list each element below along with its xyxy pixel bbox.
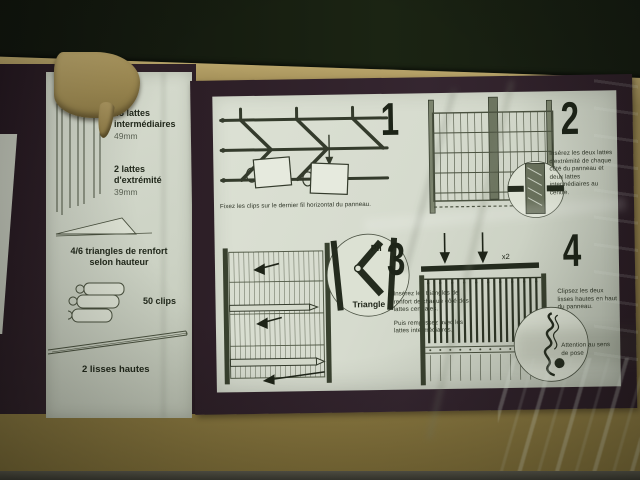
parts-item-rails: 2 lisses hautes <box>82 364 182 376</box>
step3-number: 3 <box>387 236 405 282</box>
triangle-label: Triangle <box>353 299 386 310</box>
multiplier-label: x2 <box>502 252 510 261</box>
step2-number: 2 <box>560 95 578 141</box>
floor-strip <box>0 471 640 480</box>
fold-label: Pli <box>371 243 382 253</box>
parts-list-panel: 43 lattes intermédiaires 49mm 2 lattes d… <box>46 72 192 418</box>
step1-number: 1 <box>380 96 398 142</box>
step2-panel-diagram <box>418 93 570 221</box>
parts-item-end-slats: 2 lattes d'extrémité 39mm <box>114 164 190 197</box>
parts-item-intermediate-slats: 43 lattes intermédiaires 49mm <box>114 108 190 141</box>
instruction-sheet: 1 Fixez les clips sur le dernier fil hor… <box>212 90 621 392</box>
parts-item-clips: 50 clips <box>143 296 189 307</box>
box-photo: 43 lattes intermédiaires 49mm 2 lattes d… <box>0 0 640 480</box>
parts-item-triangles: 4/6 triangles de renfort selon hauteur <box>50 246 188 269</box>
step1-clips-on-wire-diagram <box>218 104 389 199</box>
triangle-diagram <box>52 212 162 240</box>
packing-tape <box>498 358 640 474</box>
packing-tape <box>594 64 638 366</box>
top-rail-diagram <box>46 318 192 360</box>
step1-caption: Fixez les clips sur le dernier fil horiz… <box>220 200 404 211</box>
torn-cardboard <box>54 52 140 118</box>
step4-number: 4 <box>562 227 580 273</box>
step3-panel-diagram <box>219 241 339 391</box>
adjacent-label-edge <box>0 134 22 334</box>
